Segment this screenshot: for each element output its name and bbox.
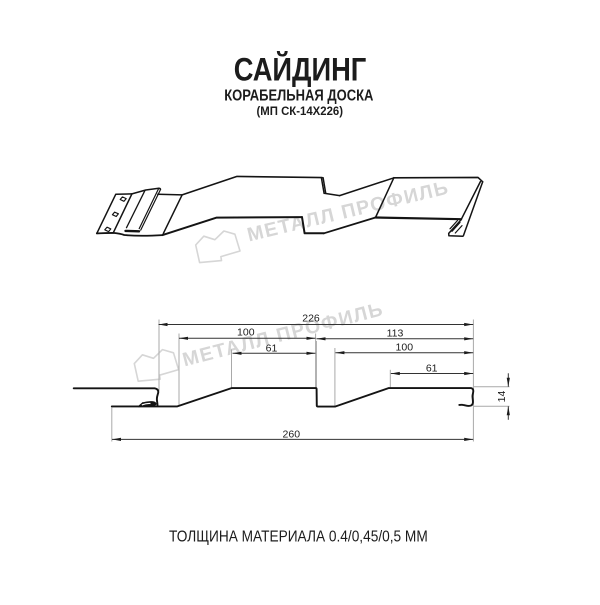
svg-text:61: 61 [426, 363, 438, 375]
svg-text:260: 260 [283, 428, 301, 440]
svg-text:61: 61 [266, 343, 278, 355]
svg-text:КОРАБЕЛЬНАЯ ДОСКА: КОРАБЕЛЬНАЯ ДОСКА [224, 87, 373, 104]
svg-text:100: 100 [396, 342, 414, 354]
svg-text:14: 14 [496, 391, 508, 403]
svg-text:(МП СК-14Х226): (МП СК-14Х226) [257, 106, 344, 118]
svg-text:113: 113 [387, 327, 404, 339]
svg-text:ТОЛЩИНА МАТЕРИАЛА 0.4/0,45/0,5: ТОЛЩИНА МАТЕРИАЛА 0.4/0,45/0,5 ММ [169, 529, 428, 546]
svg-text:САЙДИНГ: САЙДИНГ [234, 51, 367, 88]
svg-text:226: 226 [302, 312, 320, 324]
svg-text:100: 100 [237, 326, 255, 338]
